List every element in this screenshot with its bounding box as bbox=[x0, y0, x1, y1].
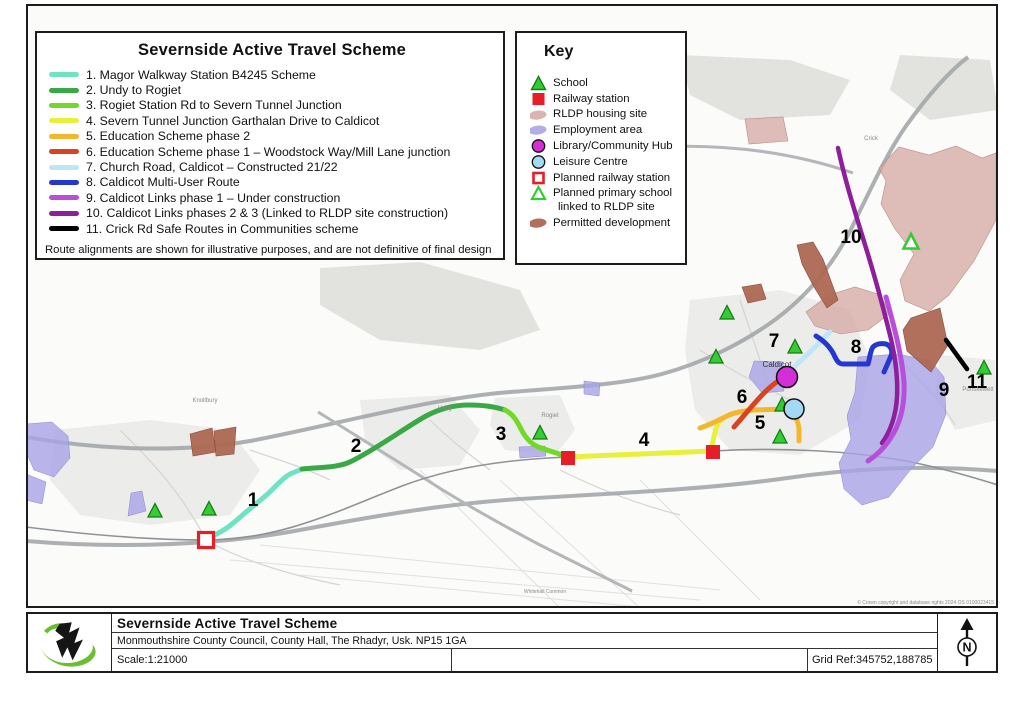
svg-text:11: 11 bbox=[967, 372, 988, 393]
route-9-label: 9. Caldicot Links phase 1 – Under constr… bbox=[86, 191, 340, 205]
key-title: Key bbox=[544, 43, 679, 61]
os-copyright: © Crown copyright and database rights 20… bbox=[857, 599, 994, 606]
legend-row: 7. Church Road, Caldicot – Constructed 2… bbox=[49, 159, 495, 174]
route-2-label: 2. Undy to Rogiet bbox=[86, 83, 181, 97]
map-scale: Scale:1:21000 bbox=[112, 649, 452, 671]
svg-text:Undy: Undy bbox=[438, 406, 452, 412]
planned-primary-school-icon bbox=[530, 185, 547, 201]
key-item-railway-station: Railway station bbox=[530, 91, 679, 107]
map-sheet-page: Knollbury Undy Rogiet Caldicot Crick Por… bbox=[0, 0, 1024, 724]
svg-text:8: 8 bbox=[851, 337, 862, 358]
route-4-label: 4. Severn Tunnel Junction Garthalan Driv… bbox=[86, 114, 379, 128]
key-item-planned-primary-school: Planned primary school bbox=[530, 186, 679, 202]
council-logo-cell bbox=[28, 614, 112, 671]
legend-row: 6. Education Scheme phase 1 – Woodstock … bbox=[49, 144, 495, 159]
route-11-label: 11. Crick Rd Safe Routes in Communities … bbox=[86, 222, 358, 236]
railway-station-severn-tunnel bbox=[561, 451, 575, 465]
legend-box: Severnside Active Travel Scheme 1. Magor… bbox=[35, 31, 505, 260]
grid-reference: Grid Ref:345752,188785 bbox=[808, 649, 937, 671]
permitted-development-icon bbox=[530, 215, 547, 231]
key-item-rldp-housing: RLDP housing site bbox=[530, 107, 679, 123]
svg-text:4: 4 bbox=[639, 430, 650, 451]
svg-text:1: 1 bbox=[248, 490, 259, 511]
key-item-planned-railway-station: Planned railway station bbox=[530, 170, 679, 186]
svg-text:Knollbury: Knollbury bbox=[192, 398, 217, 404]
planned-railway-station-icon bbox=[530, 170, 547, 186]
svg-text:2: 2 bbox=[351, 436, 362, 457]
route-7-swatch bbox=[49, 165, 79, 170]
route-6-label: 6. Education Scheme phase 1 – Woodstock … bbox=[86, 145, 450, 159]
svg-text:3: 3 bbox=[496, 424, 507, 445]
route-4-swatch bbox=[49, 118, 79, 123]
legend-row: 11. Crick Rd Safe Routes in Communities … bbox=[49, 221, 495, 236]
route-3-label: 3. Rogiet Station Rd to Severn Tunnel Ju… bbox=[86, 98, 342, 112]
legend-note: Route alignments are shown for illustrat… bbox=[45, 244, 495, 256]
legend-row: 9. Caldicot Links phase 1 – Under constr… bbox=[49, 190, 495, 205]
route-10-swatch bbox=[49, 211, 79, 216]
route-9-swatch bbox=[49, 195, 79, 200]
employment-area-icon bbox=[530, 122, 547, 138]
svg-text:Crick: Crick bbox=[864, 136, 879, 142]
key-item-school: School bbox=[530, 75, 679, 91]
route-10-label: 10. Caldicot Links phases 2 & 3 (Linked … bbox=[86, 206, 448, 220]
svg-text:Rogiet: Rogiet bbox=[541, 413, 559, 419]
planned-railway-station-magor bbox=[199, 533, 214, 548]
route-3-swatch bbox=[49, 103, 79, 108]
route-6-swatch bbox=[49, 149, 79, 154]
key-item-leisure-centre: Leisure Centre bbox=[530, 154, 679, 170]
route-5-label: 5. Education Scheme phase 2 bbox=[86, 129, 250, 143]
legend-row: 3. Rogiet Station Rd to Severn Tunnel Ju… bbox=[49, 98, 495, 113]
scheme-title: Severnside Active Travel Scheme bbox=[112, 614, 937, 633]
legend-row: 8. Caldicot Multi-User Route bbox=[49, 175, 495, 190]
legend-row: 5. Education Scheme phase 2 bbox=[49, 129, 495, 144]
map-area: Knollbury Undy Rogiet Caldicot Crick Por… bbox=[26, 4, 998, 608]
title-block: Severnside Active Travel Scheme Monmouth… bbox=[26, 612, 998, 673]
legend-title: Severnside Active Travel Scheme bbox=[49, 41, 495, 60]
key-item-employment-area: Employment area bbox=[530, 122, 679, 138]
empty-cell bbox=[452, 649, 808, 671]
library-community-hub-marker bbox=[777, 367, 798, 388]
svg-text:Whitehall Common: Whitehall Common bbox=[524, 589, 566, 595]
railway-station-caldicot bbox=[706, 445, 720, 459]
title-block-center: Severnside Active Travel Scheme Monmouth… bbox=[112, 614, 937, 671]
route-2-swatch bbox=[49, 88, 79, 93]
svg-text:5: 5 bbox=[755, 413, 766, 434]
school-icon bbox=[530, 75, 547, 91]
key-item-permitted-development: Permitted development bbox=[530, 215, 679, 231]
library-community-hub-icon bbox=[530, 138, 547, 154]
rldp-housing-icon bbox=[530, 107, 547, 123]
leisure-centre-icon bbox=[530, 154, 547, 170]
title-block-bottom-row: Scale:1:21000 Grid Ref:345752,188785 bbox=[112, 649, 937, 671]
svg-text:6: 6 bbox=[737, 387, 748, 408]
monmouthshire-council-logo bbox=[35, 617, 105, 669]
north-arrow-icon: N bbox=[947, 616, 987, 670]
key-item-library-hub: Library/Community Hub bbox=[530, 138, 679, 154]
key-item-planned-primary-school-line2: linked to RLDP site bbox=[558, 201, 679, 215]
north-arrow-cell: N bbox=[937, 614, 996, 671]
legend-row: 4. Severn Tunnel Junction Garthalan Driv… bbox=[49, 113, 495, 128]
route-11-swatch bbox=[49, 226, 79, 231]
route-5-swatch bbox=[49, 134, 79, 139]
railway-station-icon bbox=[530, 91, 547, 107]
svg-text:N: N bbox=[962, 640, 971, 654]
legend-row: 2. Undy to Rogiet bbox=[49, 82, 495, 97]
key-box: Key School Railway station RLDP housing … bbox=[515, 31, 687, 265]
svg-text:7: 7 bbox=[769, 331, 780, 352]
route-1-label: 1. Magor Walkway Station B4245 Scheme bbox=[86, 68, 316, 82]
legend-row: 10. Caldicot Links phases 2 & 3 (Linked … bbox=[49, 206, 495, 221]
route-7-label: 7. Church Road, Caldicot – Constructed 2… bbox=[86, 160, 338, 174]
legend-row: 1. Magor Walkway Station B4245 Scheme bbox=[49, 67, 495, 82]
svg-text:9: 9 bbox=[939, 380, 950, 401]
svg-text:10: 10 bbox=[840, 227, 861, 248]
council-address: Monmouthshire County Council, County Hal… bbox=[112, 633, 937, 649]
route-8-label: 8. Caldicot Multi-User Route bbox=[86, 175, 240, 189]
leisure-centre-marker bbox=[784, 399, 804, 419]
route-1-swatch bbox=[49, 72, 79, 77]
route-8-swatch bbox=[49, 180, 79, 185]
